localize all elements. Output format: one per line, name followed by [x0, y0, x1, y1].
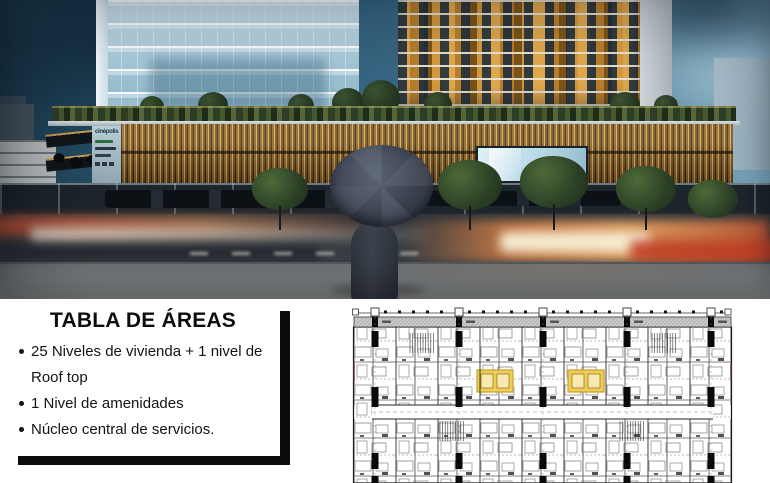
areas-card: TABLA DE ÁREAS 25 Niveles de vivienda + …	[8, 302, 280, 456]
parked-cars	[105, 190, 350, 208]
presentation-slide: cinépolis T	[0, 0, 770, 483]
street-tree	[520, 156, 588, 208]
building-render-photo: cinépolis	[0, 0, 770, 299]
street-tree	[688, 180, 738, 218]
signage-brand-label: cinépolis	[95, 128, 121, 136]
floor-plan	[352, 305, 733, 483]
tenant-signage-pylon: cinépolis	[92, 126, 123, 183]
office-tower-frame	[96, 0, 108, 118]
street-tree	[252, 168, 308, 210]
signage-row	[95, 154, 111, 157]
areas-card-title: TABLA DE ÁREAS	[16, 309, 270, 333]
areas-bullet: 25 Niveles de vivienda + 1 nivel de Roof…	[16, 339, 270, 391]
floor-plan-svg	[352, 305, 733, 483]
person-silhouette	[351, 222, 398, 299]
areas-bullet-list: 25 Niveles de vivienda + 1 nivel de Roof…	[16, 339, 270, 443]
signage-row	[95, 140, 113, 143]
tree-trunk	[645, 208, 647, 230]
elevator-core-highlight-left	[477, 370, 513, 392]
signage-logos	[95, 162, 121, 166]
umbrella	[330, 145, 433, 227]
signage-row	[95, 147, 116, 150]
traffic-light-streak	[500, 232, 650, 252]
tree-trunk	[279, 206, 281, 230]
areas-bullet: 1 Nivel de amenidades	[16, 391, 270, 417]
elevator-core-highlight-right	[568, 370, 604, 392]
residential-tower-core	[640, 0, 672, 108]
tree-trunk	[553, 204, 555, 230]
street-tree	[616, 166, 676, 212]
areas-bullet: Núcleo central de servicios.	[16, 417, 270, 443]
street-tree	[438, 160, 502, 210]
tree-trunk	[469, 206, 471, 230]
traffic-light-streak	[630, 240, 770, 262]
